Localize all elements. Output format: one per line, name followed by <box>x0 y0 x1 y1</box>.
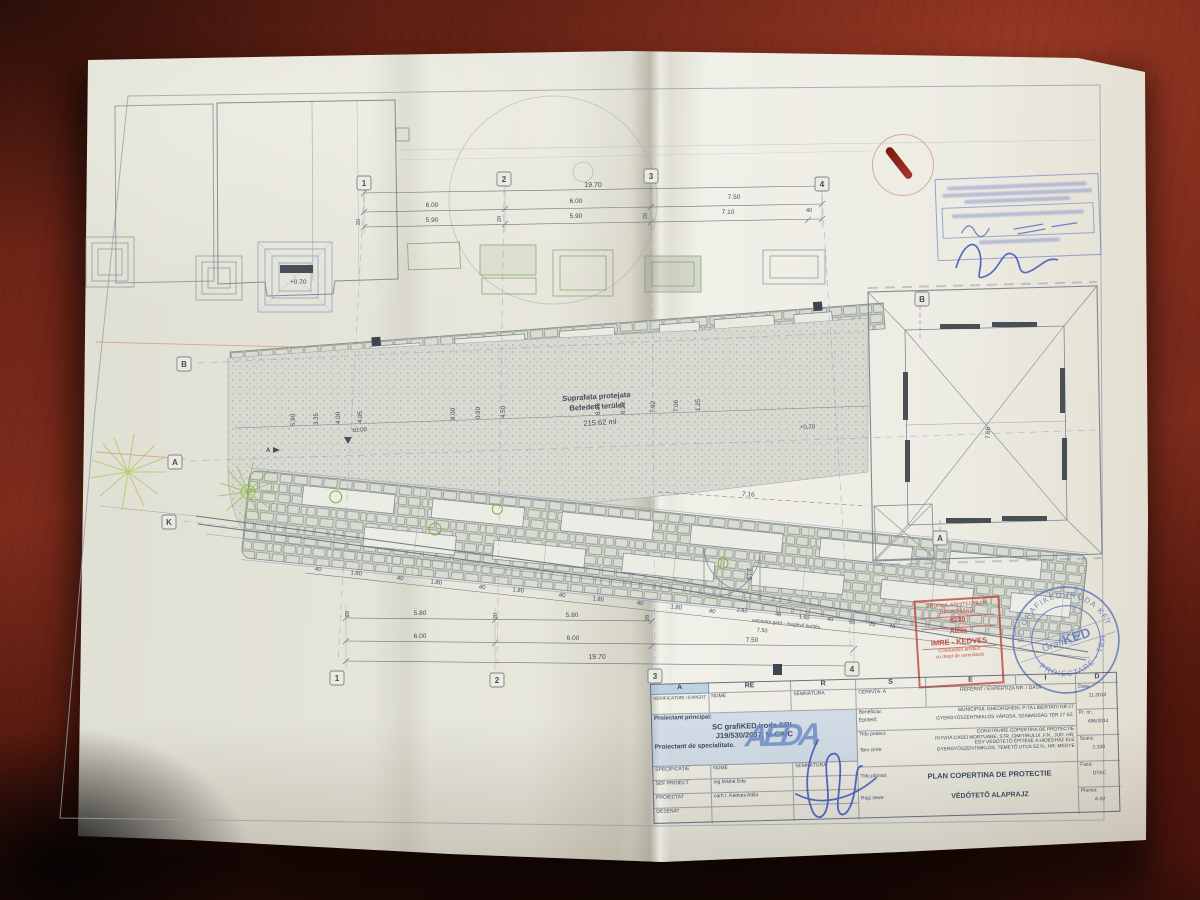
name-desenat <box>712 805 794 823</box>
cerinta-cell: CERINȚA: A <box>856 688 926 710</box>
table-dark-corner <box>0 730 250 900</box>
verificatori-cell: VERIFICATORI / EXPERT <box>651 693 710 715</box>
role-proiectat: PROIECTAT <box>654 793 712 809</box>
nume-header: NUME <box>709 691 791 713</box>
stamp-handwriting <box>943 216 1096 240</box>
titlu-proiect-labels: Titlu proiect: Terv cime: <box>857 730 901 767</box>
titlu-plansa-labels: Titlu plansa: Rajz neve: <box>858 766 902 819</box>
beneficiar-labels: Beneficiar: Építtető: <box>857 708 901 731</box>
stamp-inner-box <box>942 202 1095 239</box>
plan-title-hu: VÉDŐTETŐ ALAPRAJZ <box>904 790 1076 803</box>
meta-scara: Scara:1:100 <box>1078 735 1121 762</box>
title-block: A RE R S E I D VERIFICATORI / EXPERT NUM… <box>650 672 1121 824</box>
aeda-logo: AEDA <box>742 715 863 768</box>
north-arrow <box>872 134 934 196</box>
role-sef-proiect: SEF PROIECT <box>654 779 712 795</box>
north-arrow-needle <box>884 146 914 181</box>
specificatie-header: SPECIFICAȚIE <box>653 765 711 781</box>
semnatura-header: SEMNĂTURA <box>791 690 857 712</box>
stamp-center-logo: GrafiKED <box>1039 625 1092 655</box>
meta-data: Data:11.2014 <box>1076 683 1119 710</box>
titlu-proiect-values: CONSTRUIRE COPERTINA DE PROTECTIE IN FAT… <box>900 726 1078 767</box>
sig-desenat <box>794 804 859 822</box>
paper-fold-soft <box>370 46 430 866</box>
meta-faza: Faza:DTAC <box>1078 761 1121 788</box>
role-desenat: DESENAT <box>654 807 712 825</box>
plan-title-ro: PLAN COPERTINA DE PROTECTIE <box>903 769 1075 782</box>
approval-stamp <box>934 173 1101 261</box>
meta-plansa: Plansa:A-02 <box>1079 787 1122 814</box>
photo-scene: +0.70 Suprafata protejata <box>0 0 1200 900</box>
meta-pr-nr: Pr. nr.:496/2014 <box>1077 709 1120 736</box>
titlu-plansa-values: PLAN COPERTINA DE PROTECTIE VÉDŐTETŐ ALA… <box>901 762 1079 819</box>
